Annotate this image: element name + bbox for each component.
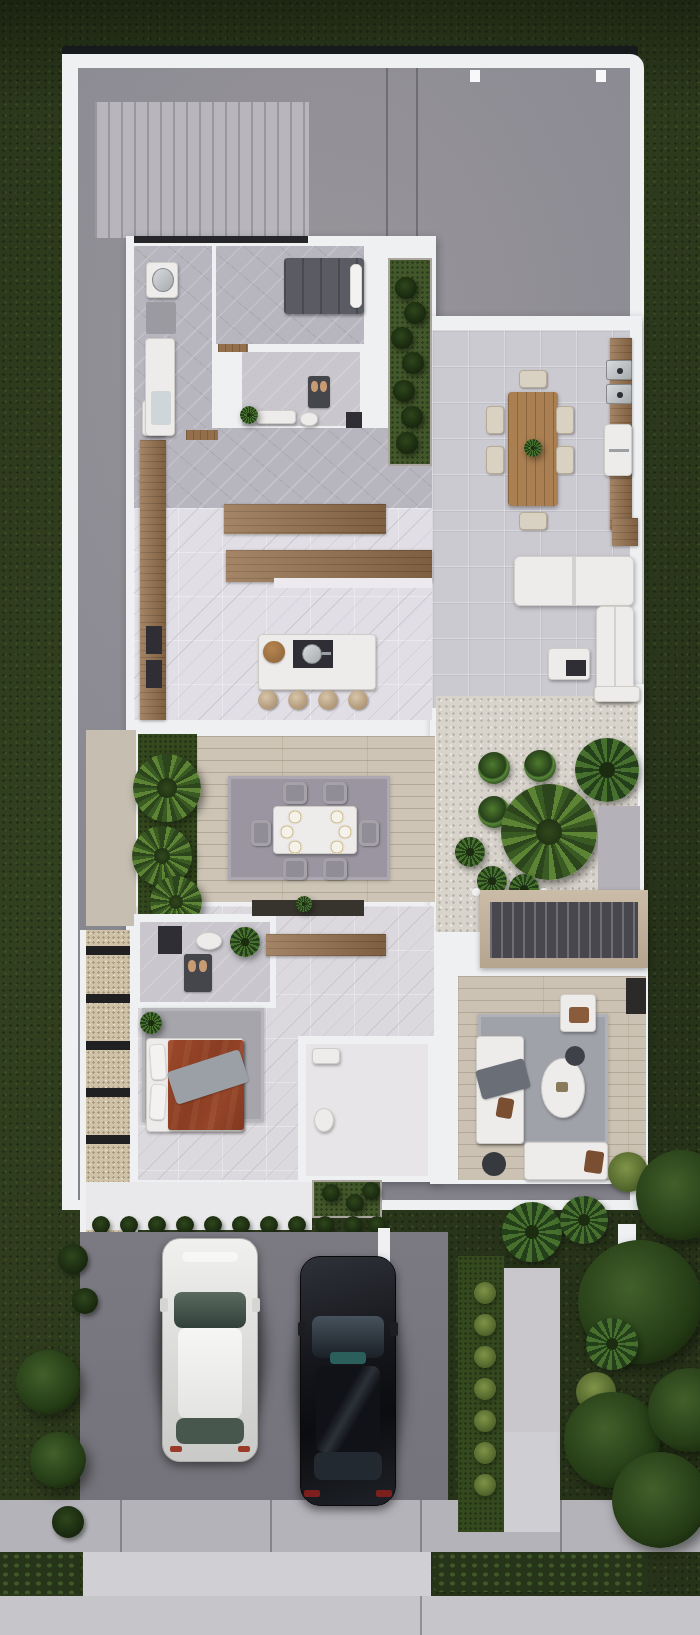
exit-walkway <box>504 1432 560 1532</box>
concrete-seam <box>416 68 418 242</box>
bath-mat <box>184 954 212 992</box>
pot <box>302 644 322 664</box>
alfresco-chair <box>519 512 547 530</box>
bar-stool <box>258 690 278 710</box>
lawn-bush <box>362 1182 380 1200</box>
side-table <box>482 1152 506 1176</box>
bar-stool <box>348 690 368 710</box>
monstera-plant <box>575 738 639 802</box>
place-setting <box>330 810 344 824</box>
entry-palm <box>133 754 201 822</box>
daybed-bench <box>524 1142 608 1180</box>
built-in-appliance <box>146 626 162 654</box>
path-stripe <box>86 1135 130 1144</box>
car-roof <box>178 1328 242 1418</box>
step-shrub <box>474 1282 496 1304</box>
planter-bush <box>393 380 415 402</box>
place-setting <box>288 840 302 854</box>
grill-unit <box>604 424 632 476</box>
side-table <box>565 1046 585 1066</box>
place-setting <box>330 840 344 854</box>
laundry-sink <box>151 391 171 425</box>
step-shrub <box>474 1442 496 1464</box>
sidewalk <box>0 1500 700 1552</box>
courtyard-shrub <box>478 752 510 784</box>
counter-return <box>612 518 638 546</box>
path-stripe <box>86 1088 130 1097</box>
alfresco-chair <box>556 406 574 434</box>
taillight <box>376 1490 392 1497</box>
bath-plant <box>230 927 260 957</box>
side-mirror <box>252 1298 260 1312</box>
sofa-pillow <box>495 1097 514 1119</box>
rooftop-stairs <box>95 102 309 238</box>
sink-drain <box>617 368 623 374</box>
place-setting <box>280 825 294 839</box>
laundry-counter <box>145 338 175 436</box>
alfresco-chair <box>519 370 547 388</box>
left-shrub <box>72 1288 98 1314</box>
planter-bush <box>402 352 424 374</box>
ground-fern <box>455 837 485 867</box>
dining-chair <box>251 820 271 846</box>
side-mirror <box>160 1298 168 1312</box>
side-mirror <box>298 1322 306 1336</box>
door-sill <box>186 430 218 440</box>
bath1-stool <box>346 412 362 428</box>
corner-plant <box>140 1012 162 1034</box>
bed-pillow <box>149 1043 167 1080</box>
left-tree <box>16 1350 80 1414</box>
dining-chair <box>359 820 379 846</box>
planter-bush <box>404 302 426 324</box>
built-in-appliance <box>146 660 162 688</box>
alfresco-chair <box>556 446 574 474</box>
bar-stool <box>318 690 338 710</box>
planter-bush <box>396 432 418 454</box>
bath1-plant <box>240 406 258 424</box>
daybed-pillow <box>584 1150 605 1174</box>
dining-chair <box>283 782 307 804</box>
slipper <box>320 381 327 392</box>
console-plant <box>296 896 312 912</box>
dining-chair <box>283 858 307 880</box>
washer-drum <box>152 268 174 292</box>
bbq-sink-module <box>606 360 632 380</box>
outdoor-sofa <box>514 556 634 606</box>
shower-panel <box>158 926 182 954</box>
bed-pillow <box>149 1083 167 1120</box>
street-seam <box>420 1596 422 1635</box>
right-fern <box>560 1196 608 1244</box>
step-shrub <box>474 1346 496 1368</box>
bath1-mat <box>308 376 330 408</box>
path-stripe <box>86 1041 130 1050</box>
place-setting <box>288 810 302 824</box>
rear-window <box>176 1418 244 1444</box>
slipper <box>188 960 196 972</box>
kitchen-cabinet-run <box>224 504 386 534</box>
place-setting <box>338 825 352 839</box>
step-shrub <box>474 1314 496 1336</box>
sunroof-glint <box>330 1352 366 1364</box>
washing-machine <box>146 262 178 298</box>
ensuite-vanity <box>312 1048 340 1064</box>
taillight <box>238 1446 250 1452</box>
door-sill <box>218 344 248 352</box>
bath1-toilet <box>300 412 318 426</box>
lawn-bush <box>346 1194 364 1212</box>
planter-bush <box>395 277 417 299</box>
left-hedgerow <box>0 1552 80 1594</box>
closet-cabinet <box>266 934 386 956</box>
parkway-walkway <box>83 1552 431 1596</box>
step-shrub <box>474 1378 496 1400</box>
garden-steps <box>504 1268 560 1432</box>
console-table <box>252 900 364 916</box>
step-shrub <box>474 1410 496 1432</box>
aerial-floor-plan-render <box>0 0 700 1635</box>
entry-stairs <box>86 730 136 926</box>
path-light <box>472 888 480 896</box>
hood-glint <box>182 1252 238 1262</box>
roof-edge <box>134 236 308 243</box>
sedan-black <box>300 1256 396 1506</box>
dining-chair <box>323 782 347 804</box>
ensuite-toilet <box>314 1108 334 1132</box>
alfresco-chair <box>486 446 504 474</box>
armchair-cushion <box>569 1007 589 1023</box>
garden-bench <box>594 686 640 702</box>
bath1-vanity <box>256 410 296 424</box>
sidewalk-seam <box>120 1500 122 1552</box>
bbq-sink-module <box>606 384 632 404</box>
car-roof <box>316 1366 380 1452</box>
step-shrub <box>474 1474 496 1496</box>
path-stripe <box>86 994 130 1003</box>
rear-window <box>314 1452 382 1480</box>
fern-cluster <box>586 1318 638 1370</box>
right-hedgerow <box>436 1552 648 1592</box>
wall-nub <box>470 70 480 82</box>
cooktop <box>293 640 333 668</box>
tv-console <box>626 978 646 1014</box>
deck-slats <box>490 902 638 958</box>
left-shrub <box>52 1506 84 1538</box>
courtyard-palm <box>501 784 597 880</box>
grill-handle <box>609 449 629 452</box>
laundry-hamper <box>146 302 176 334</box>
wall-nub <box>596 70 606 82</box>
island-wood-tray <box>263 641 285 663</box>
table-decor <box>556 1082 568 1092</box>
dining-chair <box>323 858 347 880</box>
planter-bush <box>401 406 423 428</box>
sidewalk-seam <box>270 1500 272 1552</box>
lawn-bush <box>322 1184 340 1202</box>
staff-bed <box>284 258 364 314</box>
concrete-seam <box>386 68 388 242</box>
path-stripe <box>86 946 130 955</box>
sink-drain <box>617 392 623 398</box>
serving-tray <box>566 660 586 676</box>
left-shrub <box>58 1244 88 1274</box>
suv-white <box>162 1238 258 1462</box>
taillight <box>304 1490 320 1497</box>
bar-stool <box>288 690 308 710</box>
slipper <box>199 960 207 972</box>
pot-handle <box>322 652 331 655</box>
bath-sink <box>196 932 222 950</box>
alfresco-chair <box>486 406 504 434</box>
courtyard-shrub <box>524 750 556 782</box>
windshield <box>174 1292 246 1328</box>
entry-fern <box>502 1202 562 1262</box>
street-pavement <box>0 1596 700 1635</box>
kitchen-counter-edge <box>274 578 432 588</box>
tree-canopy <box>612 1452 700 1548</box>
side-mirror <box>390 1322 398 1336</box>
sidewalk-seam <box>420 1500 422 1552</box>
table-centerpiece-plant <box>524 439 542 457</box>
left-tree <box>30 1432 86 1488</box>
sidewalk-seam <box>560 1500 562 1552</box>
lounge-armchair <box>560 994 596 1032</box>
taillight <box>170 1446 182 1452</box>
slipper <box>311 381 318 392</box>
staff-bed-pillow <box>350 264 362 308</box>
planter-bush <box>391 327 413 349</box>
